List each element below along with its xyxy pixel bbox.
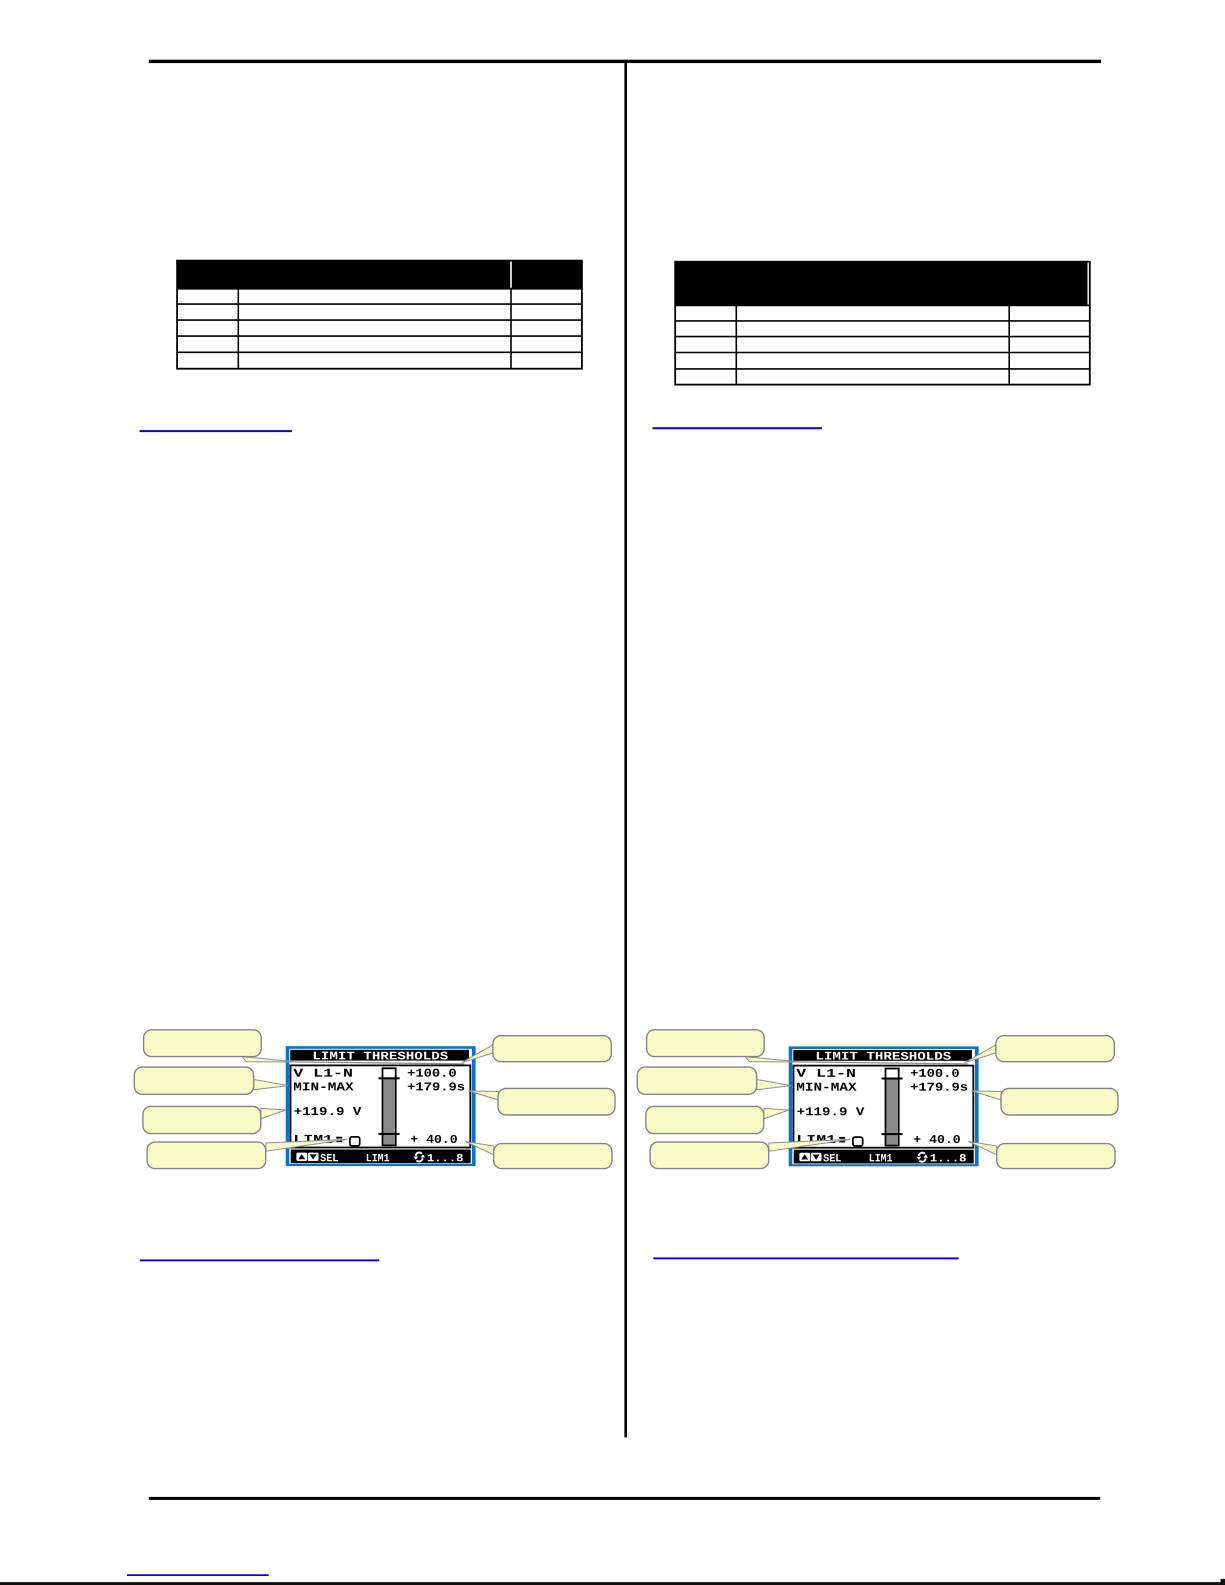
svg-text:+179.9s: +179.9s [407,1080,465,1094]
svg-text:LIMIT THRESHOLDS: LIMIT THRESHOLDS [312,1050,448,1063]
svg-text:+119.9 V: +119.9 V [294,1105,363,1119]
svg-text:LIM1: LIM1 [366,1153,390,1165]
svg-text:SEL: SEL [320,1153,339,1165]
svg-text:LIMIT THRESHOLDS: LIMIT THRESHOLDS [815,1051,951,1064]
svg-text:+119.9 V: +119.9 V [797,1105,866,1119]
svg-text:+100.0: +100.0 [407,1067,457,1081]
svg-text:MIN-MAX: MIN-MAX [796,1081,857,1095]
svg-text:+100.0: +100.0 [910,1067,960,1081]
svg-text:+ 40.0: + 40.0 [410,1133,457,1147]
svg-text:1...8: 1...8 [930,1153,967,1165]
svg-text:V L1-N: V L1-N [796,1067,856,1081]
svg-text:LIM1: LIM1 [869,1153,893,1165]
svg-text:+179.9s: +179.9s [910,1081,968,1095]
svg-text:+ 40.0: + 40.0 [913,1133,960,1147]
svg-text:SEL: SEL [823,1153,842,1165]
svg-text:V L1-N: V L1-N [293,1067,353,1081]
svg-text:MIN-MAX: MIN-MAX [293,1080,354,1094]
svg-text:1...8: 1...8 [427,1153,464,1165]
